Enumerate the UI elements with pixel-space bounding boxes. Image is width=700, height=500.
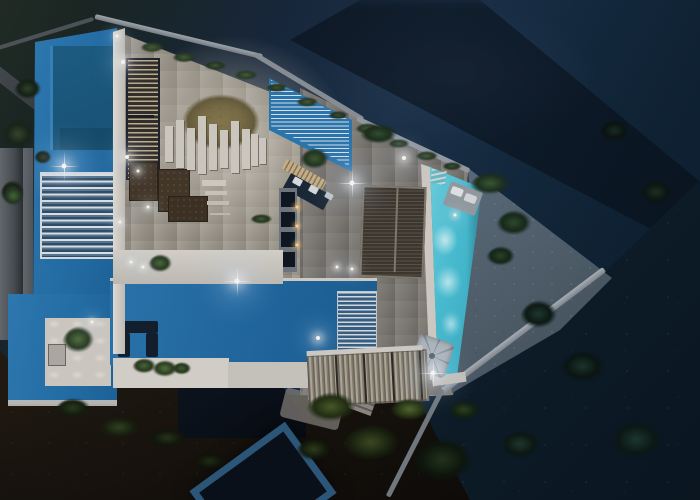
exterior-light: [125, 155, 129, 159]
exterior-light: [351, 268, 354, 271]
facade-light: [296, 206, 299, 209]
exterior-light: [336, 266, 339, 269]
exterior-light: [116, 35, 119, 38]
exterior-light: [137, 170, 140, 173]
exterior-light: [91, 321, 94, 324]
exterior-light: [316, 336, 320, 340]
exterior-light: [130, 261, 133, 264]
facade-light: [296, 244, 299, 247]
exterior-light: [121, 60, 125, 64]
exterior-light: [454, 214, 457, 217]
exterior-light: [350, 181, 355, 186]
lighting-layer: [0, 0, 700, 500]
exterior-light: [119, 221, 122, 224]
facade-light: [296, 225, 299, 228]
exterior-light: [431, 371, 436, 376]
exterior-light: [142, 266, 145, 269]
exterior-light: [402, 156, 406, 160]
aerial-photo-villa-night: [0, 0, 700, 500]
exterior-light: [235, 279, 240, 284]
exterior-light: [62, 164, 67, 169]
exterior-light: [147, 206, 150, 209]
